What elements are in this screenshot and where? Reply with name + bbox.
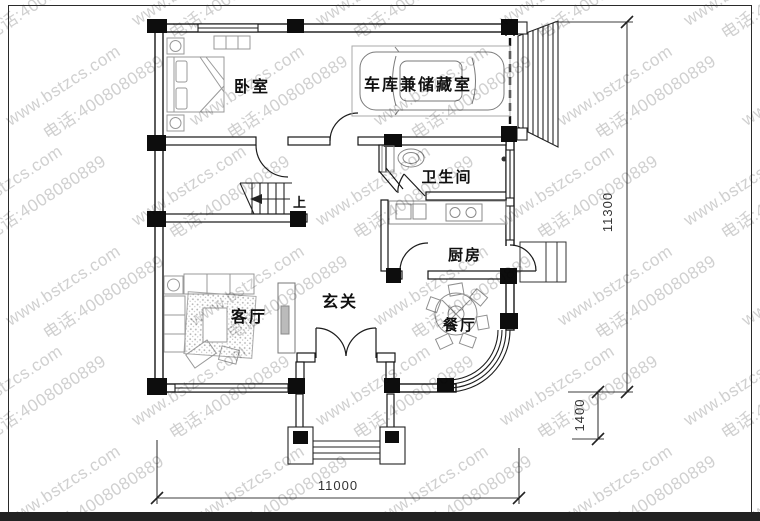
- door-swings: [256, 113, 536, 358]
- kitchen-counter: [389, 201, 506, 224]
- kitchen-label: 厨房: [448, 246, 482, 264]
- dimension-porch-label: 1400: [572, 399, 587, 432]
- dimension-width-label: 11000: [318, 478, 358, 493]
- side-steps: [520, 242, 566, 282]
- garage-label: 车库兼储藏室: [364, 75, 472, 94]
- bedroom-label: 卧室: [234, 77, 270, 96]
- dining-room-label: 餐厅: [443, 316, 477, 334]
- living-room-label: 客厅: [231, 307, 267, 326]
- floor-plan-page: www.bstzcs.com电话:4008080889www.bstzcs.co…: [0, 0, 760, 521]
- bathroom-label: 卫生间: [421, 168, 472, 186]
- dimension-depth-label: 11300: [600, 192, 615, 232]
- stairs-up-label: 上: [293, 195, 306, 210]
- garage-ramp: [517, 21, 558, 147]
- bay-window-curve: [448, 330, 510, 392]
- staircase: [240, 183, 292, 214]
- floor-plan-drawing: 上: [0, 0, 760, 521]
- foyer-label: 玄关: [322, 292, 358, 311]
- bottom-edge-bar: [0, 512, 760, 521]
- tv-cabinet: [278, 283, 295, 353]
